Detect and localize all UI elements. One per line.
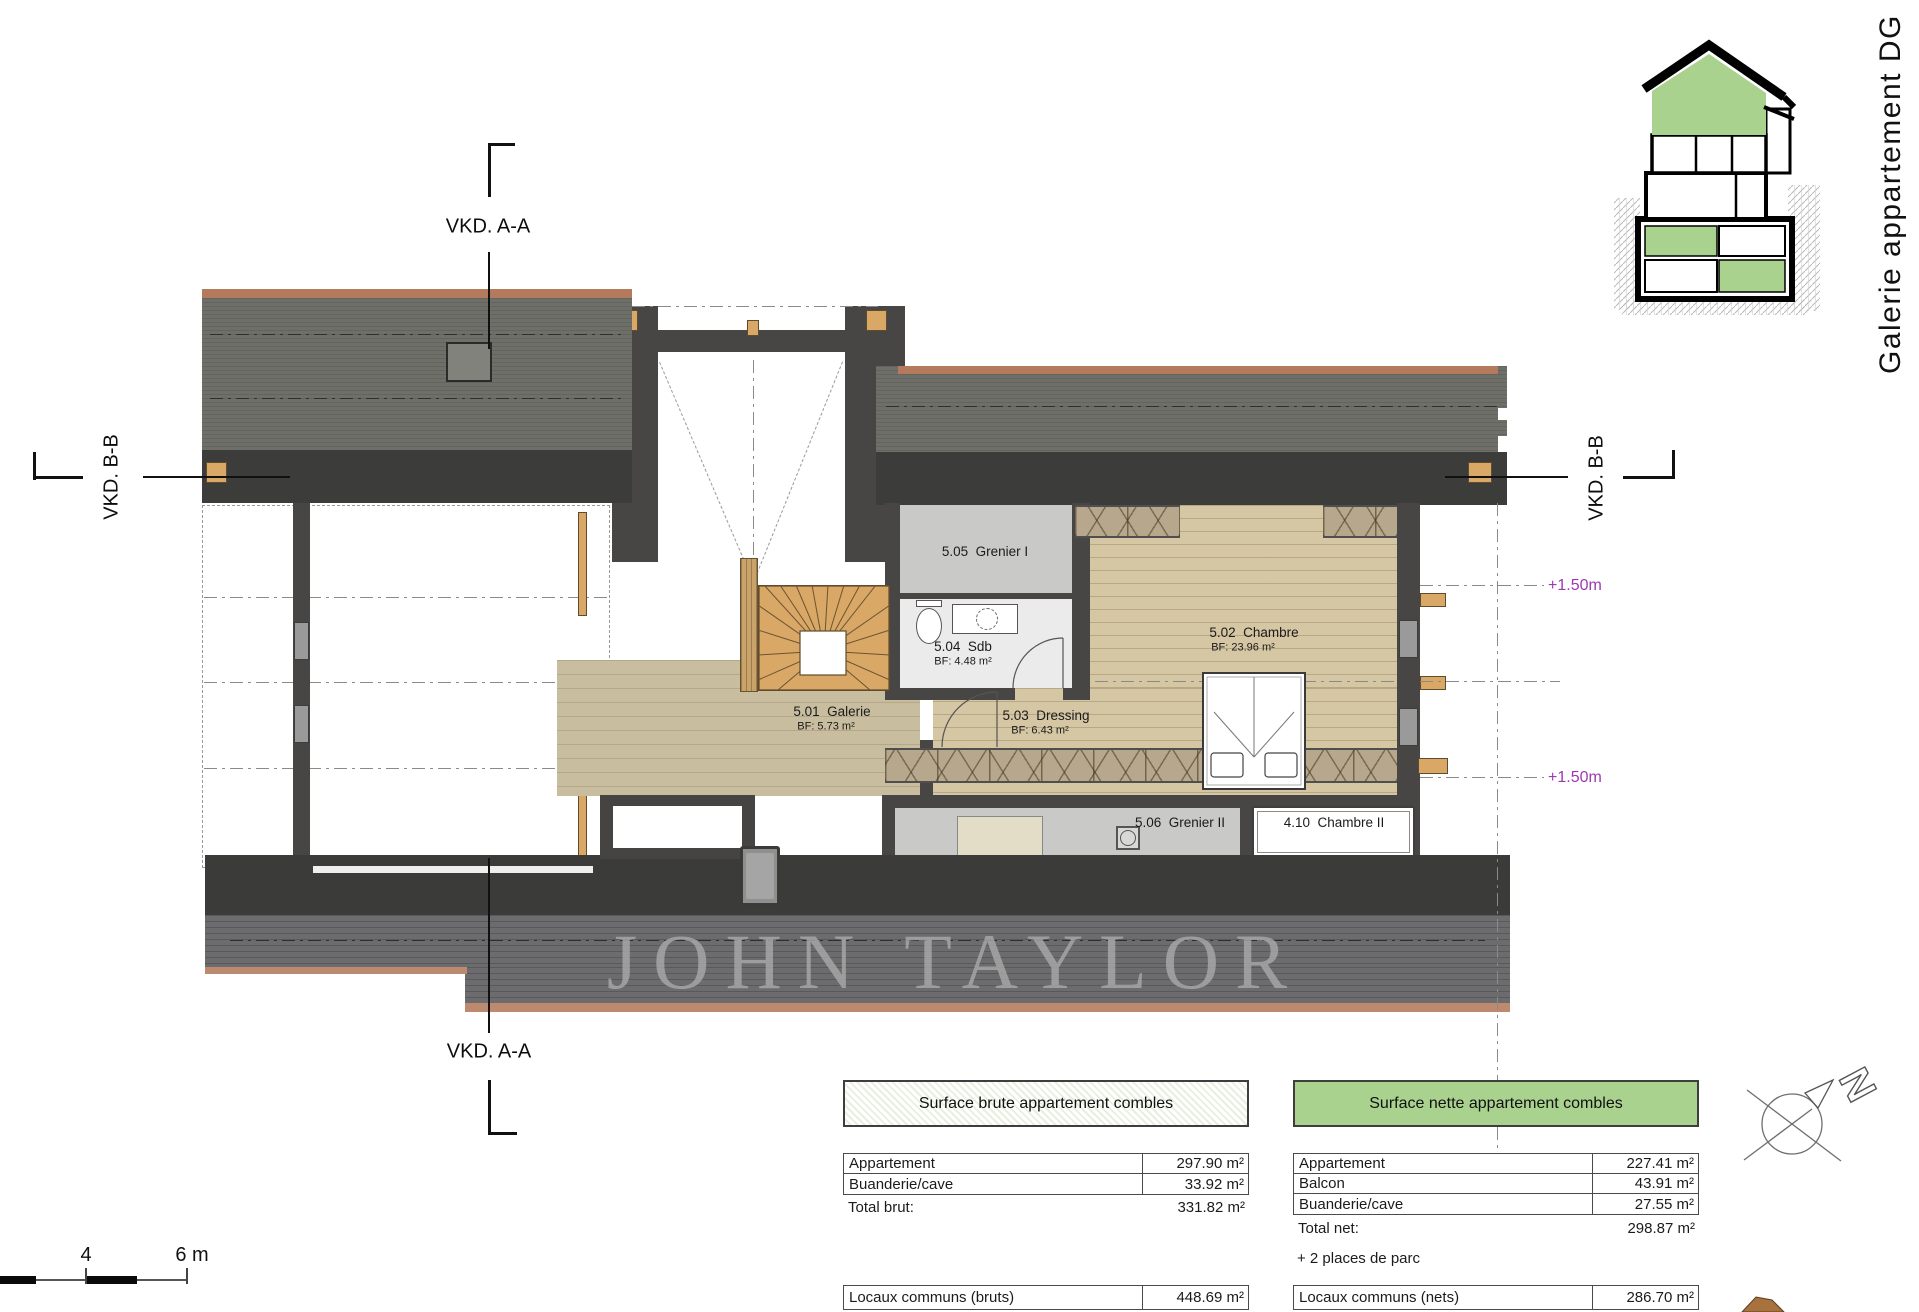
row-value: 227.41 m² [1592,1154,1698,1173]
room-area-dressing: BF: 6.43 m² [1011,726,1068,737]
row-value: 286.70 m² [1592,1286,1698,1309]
table-nette-commons: Locaux communs (nets) 286.70 m² [1293,1285,1699,1310]
table-row: Appartement 227.41 m² [1294,1154,1698,1174]
room-label-chambre: 5.02 Chambre [1209,625,1298,641]
row-label: Buanderie/cave [1294,1196,1592,1213]
table-brute-commons: Locaux communs (bruts) 448.69 m² [843,1285,1249,1310]
total-label: Total net: [1293,1220,1593,1237]
room-area-galerie: BF: 5.73 m² [797,722,854,733]
sheet-title: Galerie appartement DG [1874,22,1908,374]
row-value: 297.90 m² [1142,1154,1248,1173]
room-label-dressing: 5.03 Dressing [1002,708,1089,724]
section-label-top: VKD. A-A [446,216,530,239]
room-area-chambre: BF: 23.96 m² [1211,643,1275,654]
table-row: Balcon 43.91 m² [1294,1174,1698,1194]
total-value: 298.87 m² [1593,1220,1699,1237]
parking-note: + 2 places de parc [1297,1250,1420,1267]
row-label: Locaux communs (bruts) [844,1289,1142,1306]
table-row: Appartement 297.90 m² [844,1154,1248,1174]
row-label: Appartement [844,1155,1142,1172]
table-brute-header: Surface brute appartement combles [843,1080,1249,1127]
room-label-galerie: 5.01 Galerie [793,704,870,720]
table-nette-header: Surface nette appartement combles [1293,1080,1699,1127]
row-value: 27.55 m² [1592,1194,1698,1214]
section-label-left: VKD. B-B [101,434,124,520]
scale-label-mid: 4 [80,1244,91,1267]
row-label: Buanderie/cave [844,1176,1142,1193]
row-value: 448.69 m² [1142,1286,1248,1309]
north-arrow-icon: N [1744,1060,1886,1161]
total-label: Total brut: [843,1199,1143,1216]
row-label: Balcon [1294,1175,1592,1192]
room-label-grenier2: 5.06 Grenier II [1135,815,1225,831]
table-row: Locaux communs (bruts) 448.69 m² [844,1286,1248,1309]
table-row: Locaux communs (nets) 286.70 m² [1294,1286,1698,1309]
table-row: Buanderie/cave 33.92 m² [844,1174,1248,1194]
level-label-upper: +1.50m [1548,577,1602,595]
floorplan-sheet: JOHN TAYLOR VKD. A-A VKD. A-A VKD. B-B V… [0,0,1919,1312]
row-label: Locaux communs (nets) [1294,1289,1592,1306]
table-nette-total: Total net: 298.87 m² [1293,1218,1699,1238]
room-label-sdb: 5.04 Sdb [934,639,992,655]
table-row: Buanderie/cave 27.55 m² [1294,1194,1698,1214]
section-label-bottom: VKD. A-A [447,1041,531,1064]
table-brute-total: Total brut: 331.82 m² [843,1197,1249,1217]
table-nette: Appartement 227.41 m² Balcon 43.91 m² Bu… [1293,1153,1699,1215]
scale-label-end: 6 m [175,1244,208,1267]
level-label-lower: +1.50m [1548,769,1602,787]
room-label-chambre2: 4.10 Chambre II [1284,815,1385,831]
room-label-grenier1: 5.05 Grenier I [942,544,1028,560]
north-letter: N [1830,1060,1886,1109]
room-area-sdb: BF: 4.48 m² [934,657,991,668]
terrain-blob [1742,1297,1784,1312]
section-label-right: VKD. B-B [1586,435,1609,521]
row-value: 33.92 m² [1142,1174,1248,1194]
total-value: 331.82 m² [1143,1199,1249,1216]
table-brute: Appartement 297.90 m² Buanderie/cave 33.… [843,1153,1249,1195]
bed [1203,673,1305,789]
row-label: Appartement [1294,1155,1592,1172]
row-value: 43.91 m² [1592,1174,1698,1193]
